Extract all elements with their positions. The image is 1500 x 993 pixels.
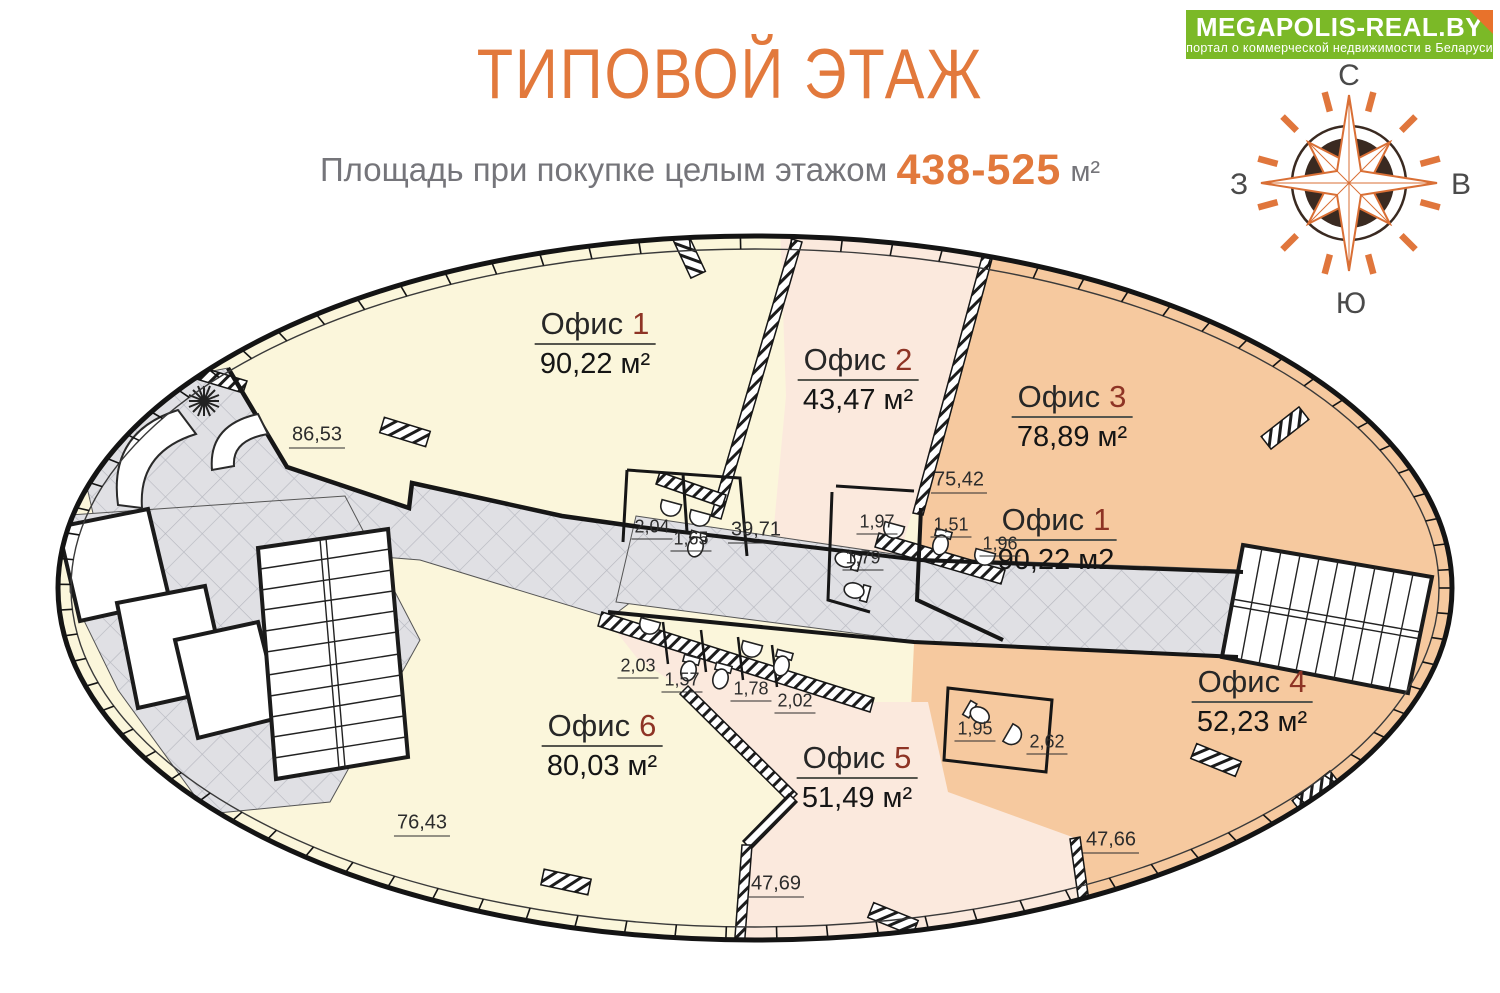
office-area: 90,22 м²	[535, 348, 656, 381]
office-area: 43,47 м²	[798, 384, 919, 417]
office-name: Офис1	[535, 306, 656, 345]
office-name: Офис4	[1192, 664, 1313, 703]
office-label-3: Офис3 78,89 м²	[1012, 379, 1133, 454]
office-name: Офис6	[542, 708, 663, 747]
compass-east-label: В	[1451, 168, 1471, 201]
office-name: Офис3	[1012, 379, 1133, 418]
compass-north-label: С	[1338, 59, 1360, 92]
area-unit: м²	[1070, 156, 1100, 188]
dimension-label: 1,96	[979, 534, 1020, 557]
dimension-label: 2,62	[1026, 732, 1067, 755]
compass-west-label: З	[1230, 168, 1248, 201]
dimension-label: 1,65	[670, 529, 711, 552]
left-stairwell	[258, 529, 408, 779]
area-range: 438-525	[896, 146, 1061, 194]
office-area: 78,89 м²	[1012, 421, 1133, 454]
dimension-label: 1,78	[730, 679, 771, 702]
dimension-label: 1,97	[856, 512, 897, 535]
dimension-label: 76,43	[394, 812, 450, 837]
office-area: 52,23 м²	[1192, 706, 1313, 739]
dimension-label: 1,95	[954, 719, 995, 742]
dimension-label: 2,04	[631, 517, 672, 540]
dimension-label: 1,57	[661, 670, 702, 693]
office-area: 51,49 м²	[797, 782, 918, 815]
dimension-label: 2,02	[774, 691, 815, 714]
compass-rose: С В Ю З	[1218, 55, 1480, 317]
dimension-label: 1,51	[930, 515, 971, 538]
logo-subtitle: портал о коммерческой недвижимости в Бел…	[1186, 42, 1493, 55]
office-label-4: Офис4 52,23 м²	[1192, 664, 1313, 739]
dimension-label: 1,79	[842, 548, 883, 571]
site-logo[interactable]: MEGAPOLIS-REAL.BY портал о коммерческой …	[1186, 10, 1493, 59]
office-label-2: Офис2 43,47 м²	[798, 342, 919, 417]
plant-icon	[189, 386, 219, 416]
dimension-label: 2,03	[617, 656, 658, 679]
office-name: Офис5	[797, 740, 918, 779]
page-title: ТИПОВОЙ ЭТАЖ	[375, 34, 1085, 115]
dimension-label: 39,71	[728, 519, 784, 544]
subtitle-text: Площадь при покупке целым этажом	[320, 151, 887, 188]
office-label-1: Офис1 90,22 м²	[535, 306, 656, 381]
office-label-5: Офис5 51,49 м²	[797, 740, 918, 815]
office-area: 80,03 м²	[542, 750, 663, 783]
office-label-6: Офис6 80,03 м²	[542, 708, 663, 783]
floor-plan-page: ТИПОВОЙ ЭТАЖ Площадь при покупке целым э…	[0, 0, 1500, 993]
logo-title: MEGAPOLIS-REAL.BY	[1196, 14, 1483, 41]
office-name: Офис2	[798, 342, 919, 381]
compass-south-label: Ю	[1336, 287, 1366, 317]
dimension-label: 75,42	[931, 469, 987, 494]
page-subtitle: Площадь при покупке целым этажом 438-525…	[210, 146, 1210, 195]
dimension-label: 47,69	[748, 873, 804, 898]
dimension-label: 86,53	[289, 424, 345, 449]
dimension-label: 47,66	[1083, 829, 1139, 854]
